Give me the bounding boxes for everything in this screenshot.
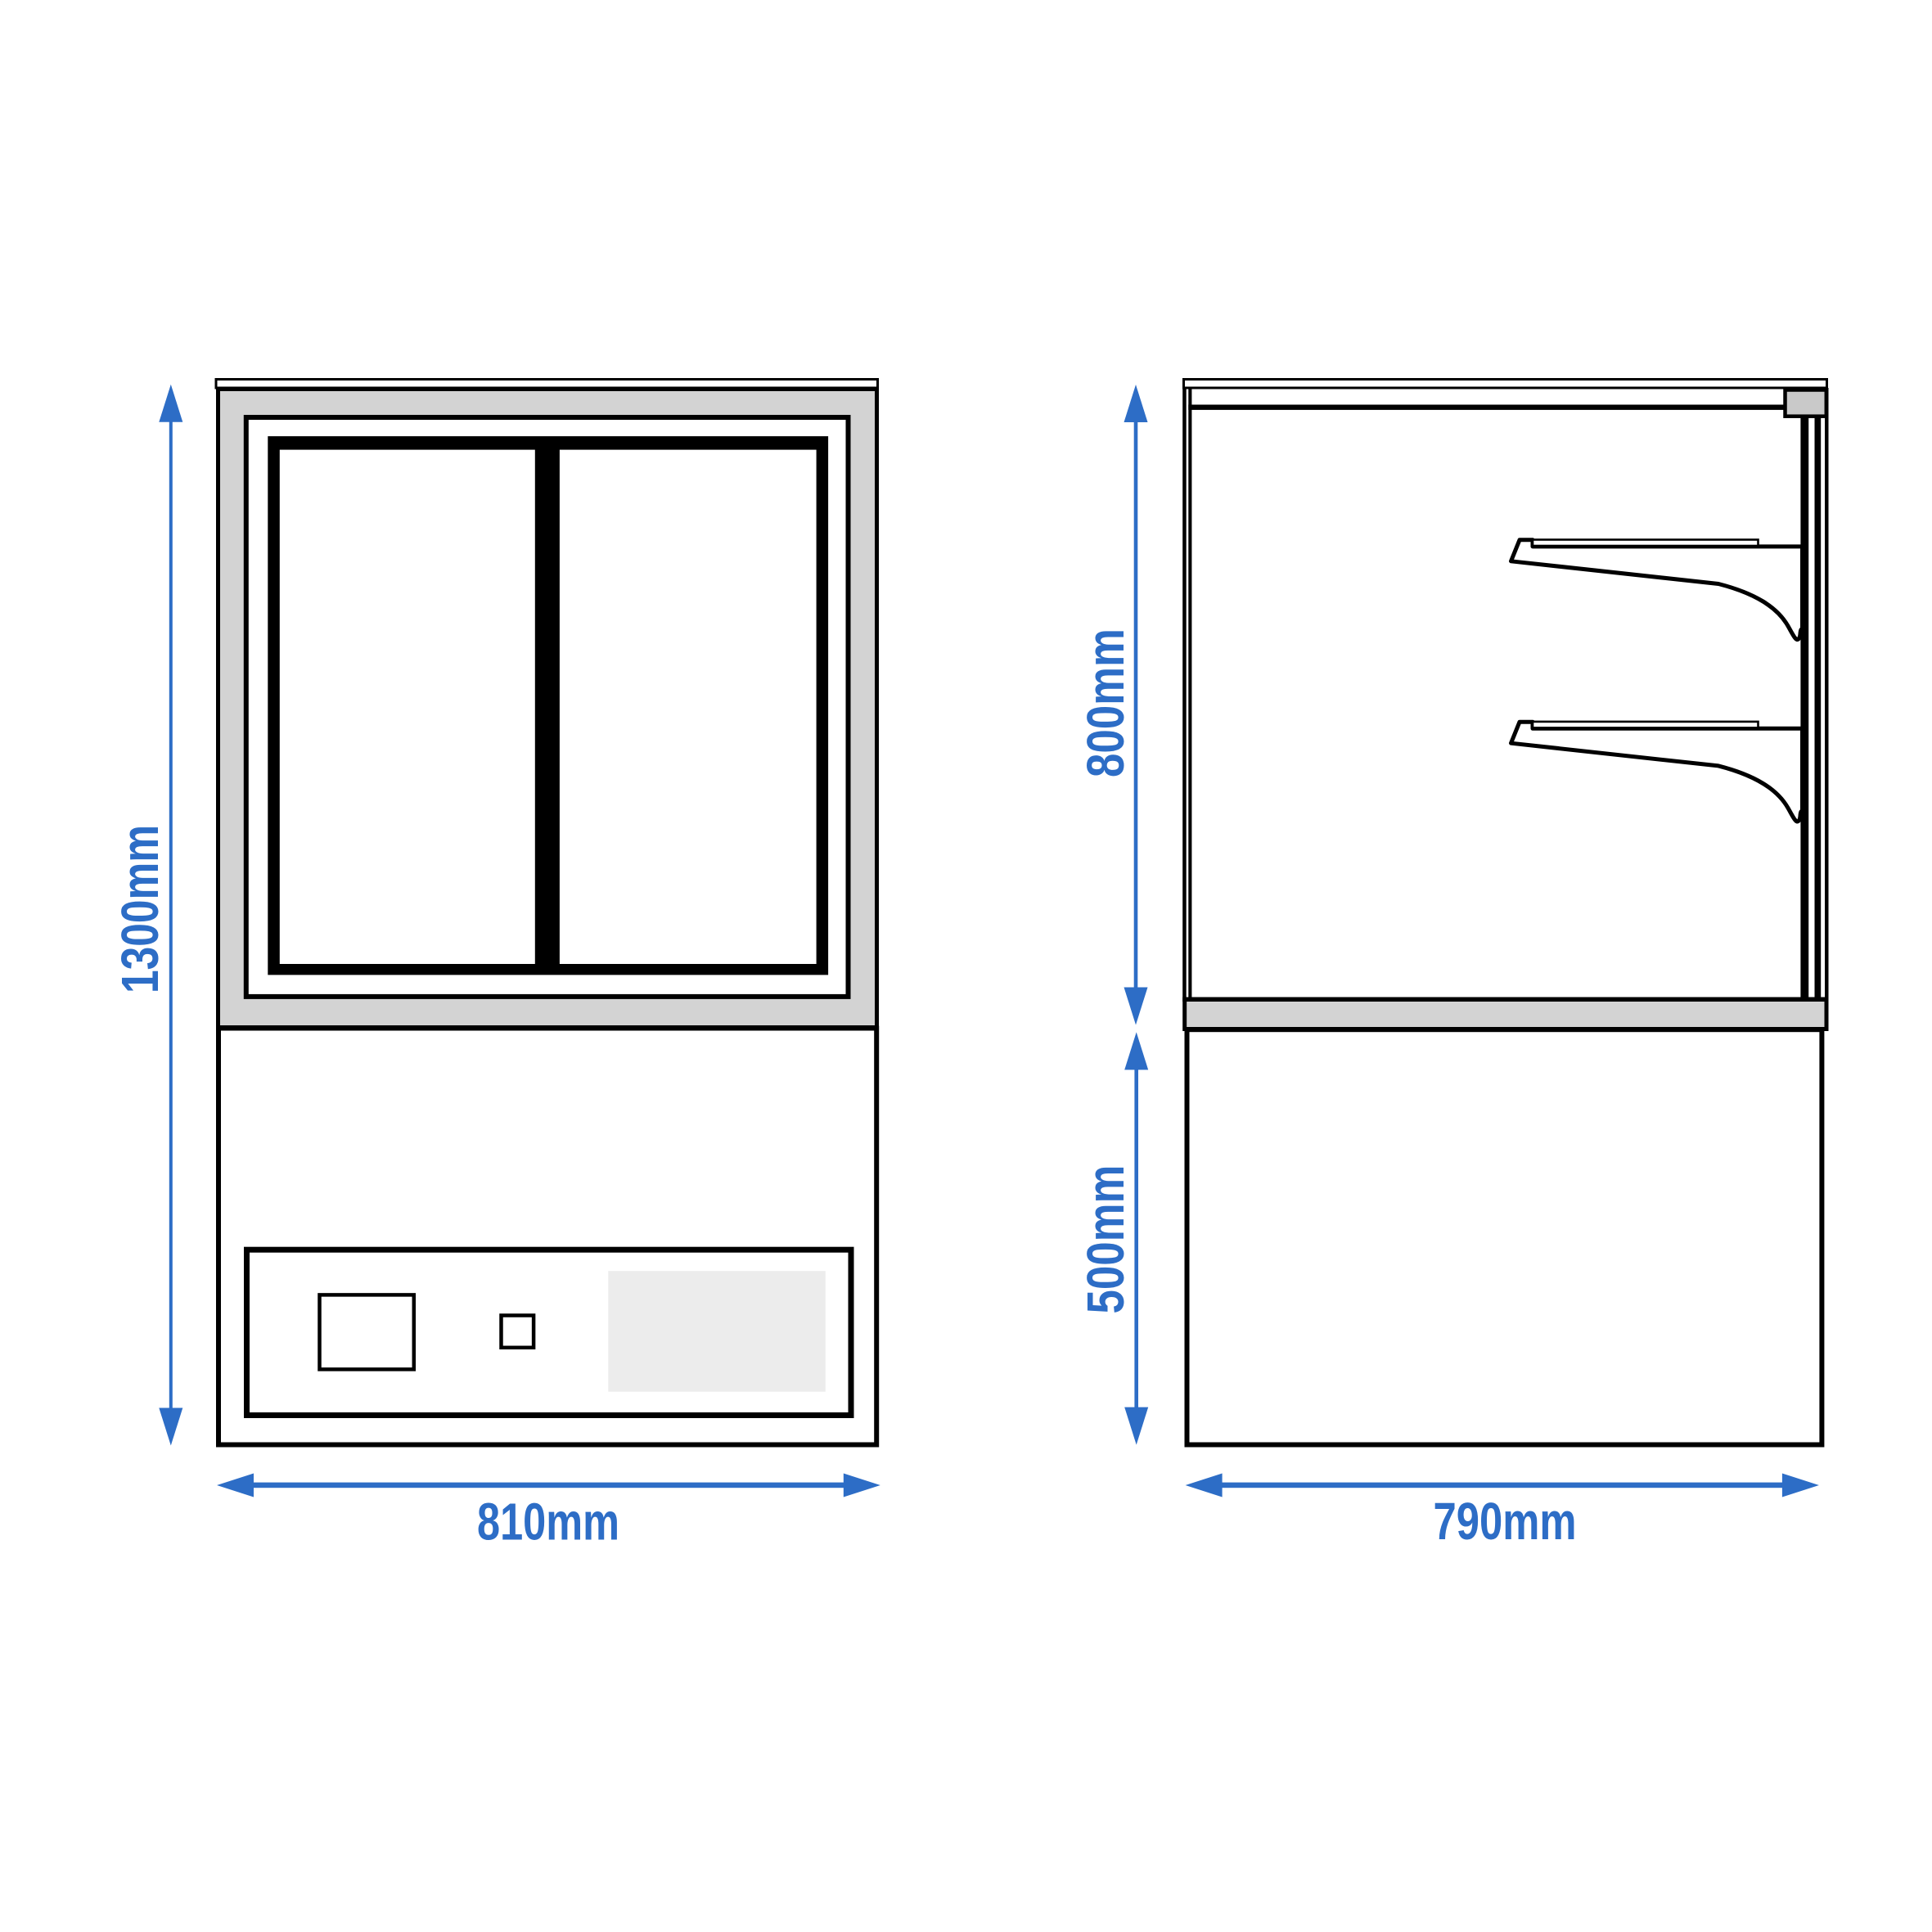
svg-text:1300mm: 1300mm (110, 825, 169, 993)
svg-text:790mm: 790mm (1434, 1492, 1577, 1551)
svg-text:800mm: 800mm (1076, 628, 1135, 777)
svg-text:500mm: 500mm (1076, 1165, 1135, 1314)
svg-text:810mm: 810mm (477, 1493, 619, 1551)
